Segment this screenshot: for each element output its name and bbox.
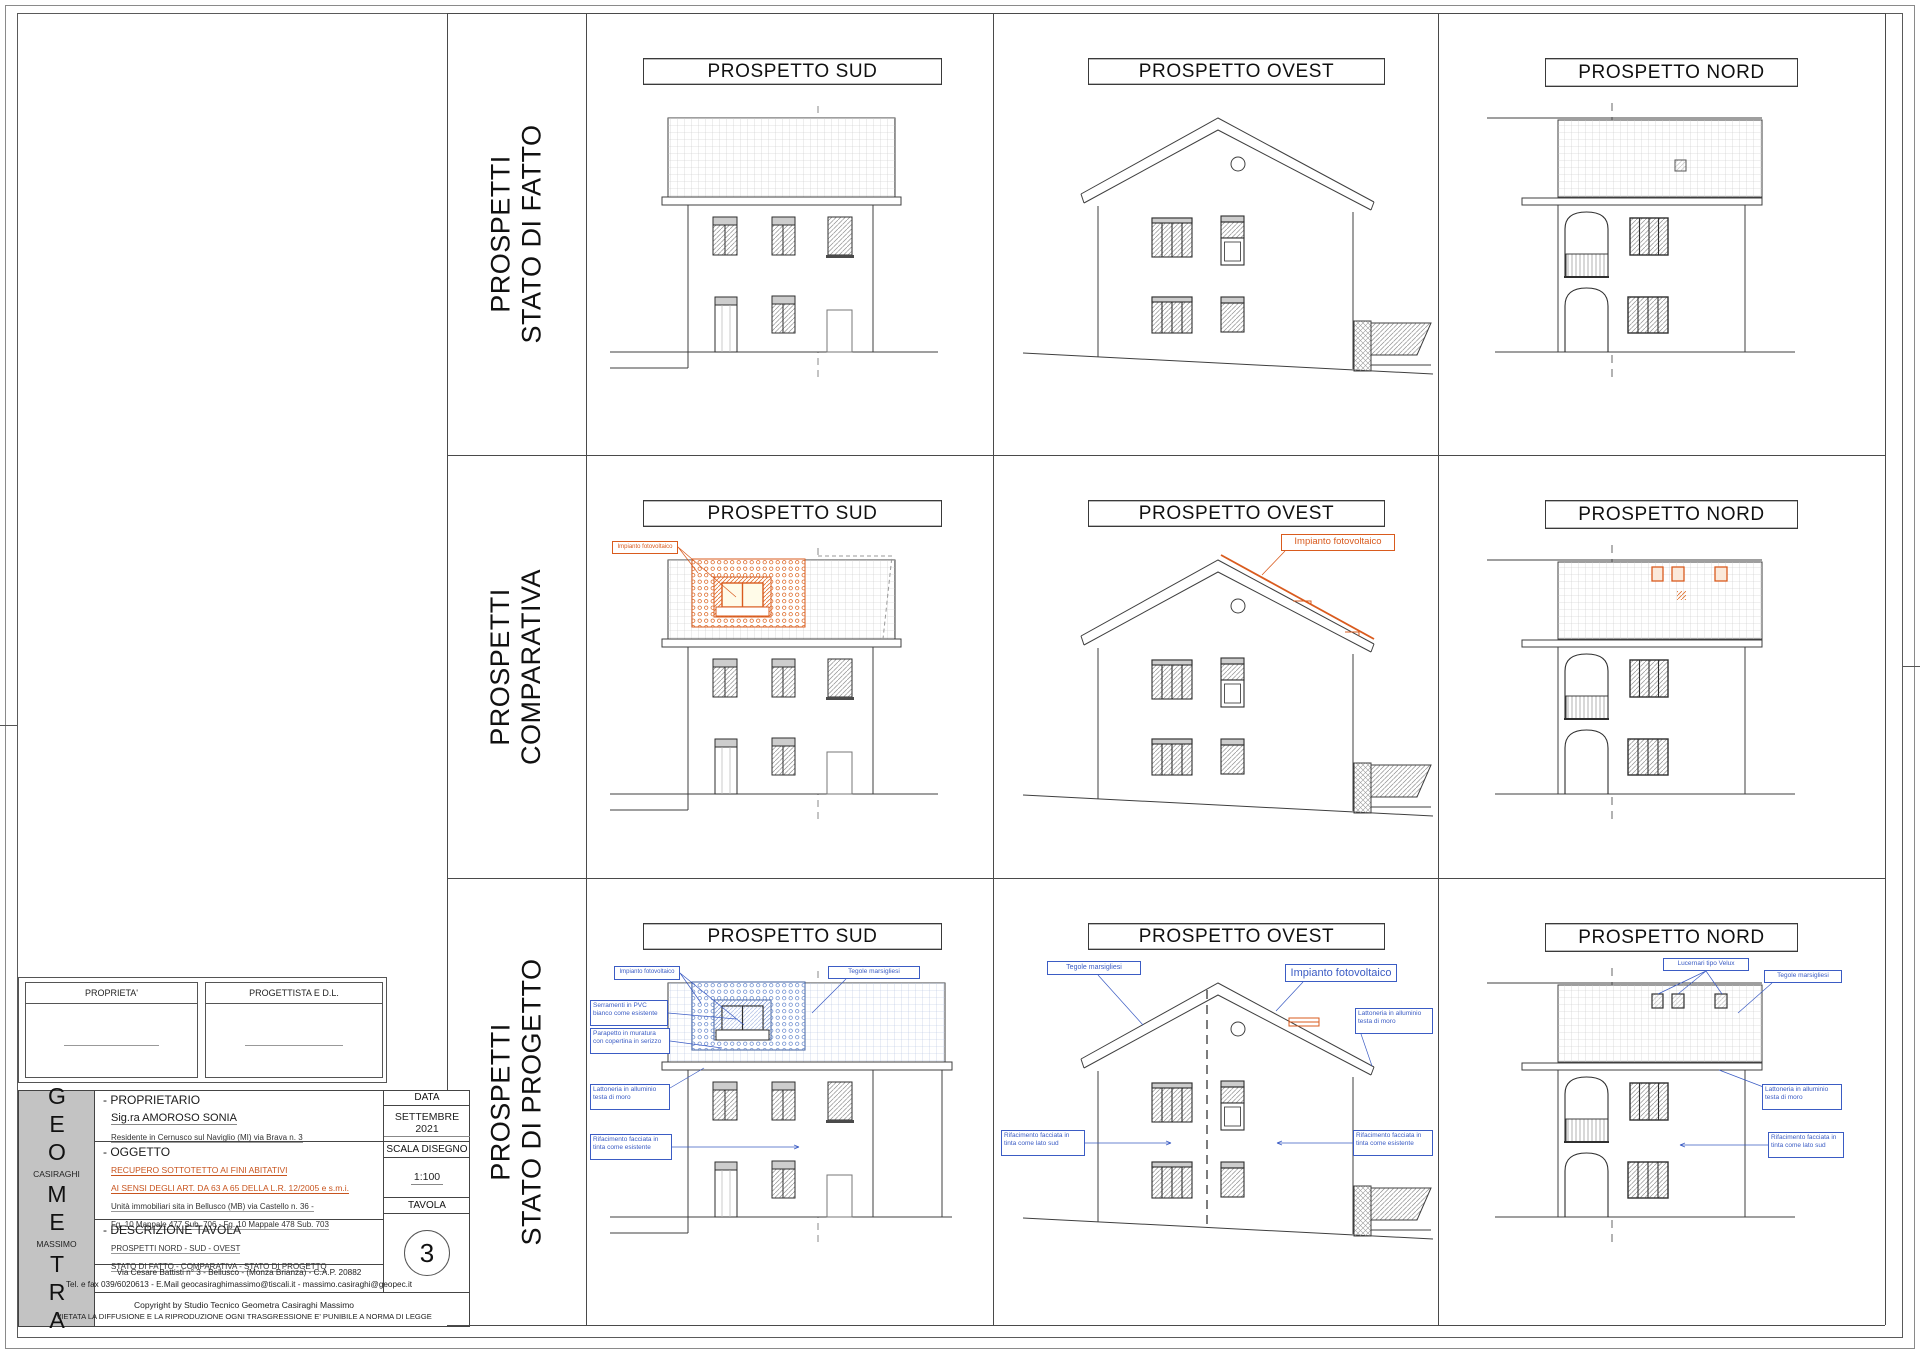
cell-fatto-sud: PROSPETTO SUD xyxy=(586,13,993,455)
annotation-tegole-marsigliesi: Tegole marsigliesi xyxy=(1047,961,1141,975)
scala-value-cell: 1:100 xyxy=(383,1158,470,1198)
grid-line xyxy=(1885,13,1886,1325)
row-label-line: STATO DI FATTO xyxy=(517,124,548,343)
oggetto-line: RECUPERO SOTTOTETTO AI FINI ABITATIVI xyxy=(111,1165,287,1176)
fold-tick-right xyxy=(1903,666,1920,667)
elevation-title-text: PROSPETTO SUD xyxy=(707,61,877,83)
studio-logo-cell: GEO CASIRAGHI ME MASSIMO TRA xyxy=(18,1090,95,1327)
cell-progetto-sud: PROSPETTO SUD Impianto fotovoltaico Tego… xyxy=(586,878,993,1325)
row-label-line: STATO DI PROGETTO xyxy=(517,958,548,1245)
copyright-line: Copyright by Studio Tecnico Geometra Cas… xyxy=(134,1300,354,1310)
annotation-tegole-marsigliesi: Tegole marsigliesi xyxy=(1764,970,1842,983)
elevation-title: PROSPETTO SUD xyxy=(643,500,942,527)
cell-progetto-nord: PROSPETTO NORD Lucernari tipo Velux Tego… xyxy=(1438,878,1885,1325)
studio-firstname: MASSIMO xyxy=(36,1239,76,1249)
annotation-lattoneria: Lattoneria in alluminio testa di moro xyxy=(1355,1008,1433,1034)
tavola-label-cell: TAVOLA xyxy=(383,1198,470,1214)
row-label-stato-di-fatto: PROSPETTISTATO DI FATTO xyxy=(447,13,586,455)
studio-address-cell: Via Cesare Battisti n° 3 - Bellusco - (M… xyxy=(95,1265,383,1293)
section-descrizione: - DESCRIZIONE TAVOLA PROSPETTI NORD - SU… xyxy=(95,1220,383,1265)
studio-letters: ME xyxy=(45,1181,68,1237)
elevation-title-text: PROSPETTO NORD xyxy=(1578,927,1764,949)
section-header: - OGGETTO xyxy=(103,1145,375,1159)
signature-line xyxy=(245,1045,344,1046)
section-oggetto: - OGGETTO RECUPERO SOTTOTETTO AI FINI AB… xyxy=(95,1142,383,1220)
elevation-title: PROSPETTO OVEST xyxy=(1088,500,1385,527)
signature-box-progettista: PROGETTISTA E D.L. xyxy=(205,982,383,1078)
section-header: - PROPRIETARIO xyxy=(103,1093,375,1107)
copyright-cell: Copyright by Studio Tecnico Geometra Cas… xyxy=(18,1293,470,1327)
scala-label-cell: SCALA DISEGNO xyxy=(383,1142,470,1158)
elevation-title: PROSPETTO OVEST xyxy=(1088,923,1385,950)
cell-comparativa-nord: PROSPETTO NORD xyxy=(1438,455,1885,878)
data-value: SETTEMBRE 2021 xyxy=(384,1111,470,1137)
annotation-impianto-fotovoltaico: Impianto fotovoltaico xyxy=(612,541,678,554)
elevation-title: PROSPETTO SUD xyxy=(643,923,942,950)
grid-line xyxy=(447,1325,1885,1326)
annotation-rifacimento-lato-sud: Rifacimento facciata in tinta come lato … xyxy=(1768,1132,1844,1158)
data-value-cell: SETTEMBRE 2021 xyxy=(383,1106,470,1142)
copyright-line: VIETATA LA DIFFUSIONE E LA RIPRODUZIONE … xyxy=(56,1312,432,1321)
oggetto-line: Unità immobiliari sita in Bellusco (MB) … xyxy=(111,1202,314,1212)
annotation-lattoneria: Lattoneria in alluminio testa di moro xyxy=(590,1084,670,1110)
elevation-title-text: PROSPETTO NORD xyxy=(1578,504,1764,526)
annotation-impianto-fotovoltaico: Impianto fotovoltaico xyxy=(1285,964,1397,982)
elevation-title-text: PROSPETTO OVEST xyxy=(1139,926,1335,948)
elevation-title: PROSPETTO NORD xyxy=(1545,923,1798,952)
cell-comparativa-ovest: PROSPETTO OVEST Impianto fotovoltaico xyxy=(993,455,1438,878)
elevation-title-text: PROSPETTO SUD xyxy=(707,503,877,525)
signature-box-proprieta: PROPRIETA' xyxy=(25,982,198,1078)
elevation-title: PROSPETTO SUD xyxy=(643,58,942,85)
section-proprietario: - PROPRIETARIO Sig.ra AMOROSO SONIA Resi… xyxy=(95,1090,383,1142)
elevation-title: PROSPETTO NORD xyxy=(1545,500,1798,529)
scala-value: 1:100 xyxy=(411,1171,443,1185)
annotation-impianto-fotovoltaico: Impianto fotovoltaico xyxy=(614,966,680,980)
tavola-number-circle: 3 xyxy=(404,1230,450,1276)
row-label-line: PROSPETTI xyxy=(486,124,517,343)
annotation-tegole-marsigliesi: Tegole marsigliesi xyxy=(828,966,920,979)
row-label-comparativa: PROSPETTICOMPARATIVA xyxy=(447,455,586,878)
studio-address: Via Cesare Battisti n° 3 - Bellusco - (M… xyxy=(117,1267,362,1278)
signature-box-header: PROPRIETA' xyxy=(26,983,197,1004)
cell-fatto-nord: PROSPETTO NORD xyxy=(1438,13,1885,455)
elevation-title: PROSPETTO NORD xyxy=(1545,58,1798,87)
elevation-title: PROSPETTO OVEST xyxy=(1088,58,1385,85)
tavola-number: 3 xyxy=(420,1238,434,1269)
annotation-rifacimento-facciata: Rifacimento facciata in tinta come esist… xyxy=(1353,1130,1433,1156)
signature-line xyxy=(64,1045,160,1046)
elevation-title-text: PROSPETTO NORD xyxy=(1578,62,1764,84)
annotation-rifacimento-lato-sud: Rifacimento facciata in tinta come lato … xyxy=(1001,1130,1085,1156)
drawing-sheet: PROSPETTISTATO DI FATTO PROSPETTICOMPARA… xyxy=(0,0,1920,1356)
annotation-impianto-fotovoltaico: Impianto fotovoltaico xyxy=(1281,534,1395,551)
row-label-line: PROSPETTI xyxy=(486,568,517,764)
annotation-rifacimento-facciata: Rifacimento facciata in tinta come esist… xyxy=(590,1134,672,1160)
fold-tick-left xyxy=(0,725,17,726)
studio-letters: GEO xyxy=(45,1083,68,1167)
studio-surname: CASIRAGHI xyxy=(33,1169,80,1179)
annotation-lattoneria: Lattoneria in alluminio testa di moro xyxy=(1762,1084,1842,1110)
elevation-title-text: PROSPETTO OVEST xyxy=(1139,503,1335,525)
section-header: - DESCRIZIONE TAVOLA xyxy=(103,1223,375,1237)
elevation-title-text: PROSPETTO OVEST xyxy=(1139,61,1335,83)
cell-progetto-ovest: PROSPETTO OVEST Tegole marsigliesi Impia… xyxy=(993,878,1438,1325)
data-label-cell: DATA xyxy=(383,1090,470,1106)
studio-contacts: Tel. e fax 039/6020613 - E.Mail geocasir… xyxy=(66,1279,412,1290)
oggetto-line: AI SENSI DEGLI ART. DA 63 A 65 DELLA L.R… xyxy=(111,1183,349,1194)
cell-comparativa-sud: PROSPETTO SUD Impianto fotovoltaico xyxy=(586,455,993,878)
elevation-title-text: PROSPETTO SUD xyxy=(707,926,877,948)
descrizione-line: PROSPETTI NORD - SUD - OVEST xyxy=(111,1244,240,1254)
cell-fatto-ovest: PROSPETTO OVEST xyxy=(993,13,1438,455)
row-label-line: COMPARATIVA xyxy=(517,568,548,764)
annotation-lucernari: Lucernari tipo Velux xyxy=(1663,958,1749,971)
row-label-line: PROSPETTI xyxy=(486,958,517,1245)
annotation-serramenti: Serramenti in PVC bianco come esistente xyxy=(590,1000,668,1026)
proprietario-name: Sig.ra AMOROSO SONIA xyxy=(111,1112,237,1125)
signature-box-header: PROGETTISTA E D.L. xyxy=(206,983,382,1004)
annotation-parapetto: Parapetto in muratura con copertina in s… xyxy=(590,1028,670,1054)
tavola-value-cell: 3 xyxy=(383,1214,470,1293)
